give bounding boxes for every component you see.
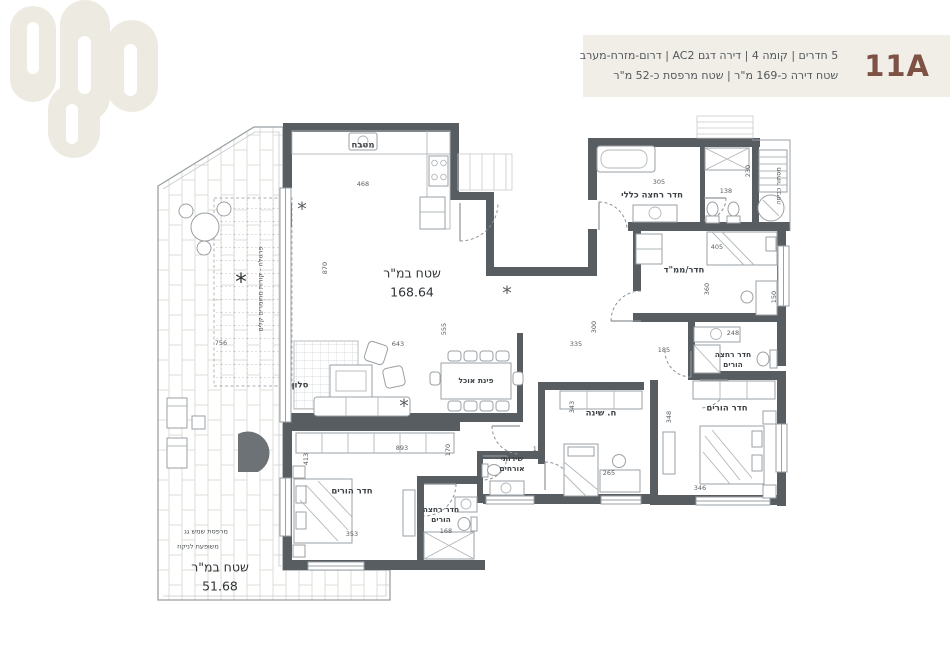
living-room [294, 340, 410, 416]
window [280, 478, 291, 536]
dimension-label: 185 [658, 346, 670, 354]
plant-icon: * [399, 398, 409, 417]
bedroom-bl-door [492, 426, 520, 454]
parents-bath-door [665, 351, 691, 377]
bench [403, 490, 415, 536]
stove-icon [429, 156, 448, 186]
window [778, 246, 789, 306]
room-label: שירותי אורחים [499, 454, 524, 474]
dimension-label: 343 [568, 401, 576, 413]
window [776, 424, 787, 472]
room-label: מרפסת שמש גג [184, 528, 228, 537]
room-label: חדר רחצה כללי [621, 190, 683, 201]
dimension-label: 305 [653, 178, 665, 186]
toilet-icon [706, 202, 719, 223]
dimension-label: 870 [321, 262, 329, 274]
bathtub-icon [597, 146, 655, 172]
dimension-label: 756 [215, 339, 227, 347]
dimension-label: 138 [720, 187, 732, 195]
mamad-room [636, 232, 777, 315]
room-label: חדר רחצה הורים [715, 350, 751, 370]
room-label: ח. שינה [586, 408, 617, 419]
floorplan-drawing [0, 0, 950, 650]
sink-icon [490, 481, 524, 495]
window [696, 497, 770, 505]
toilet-icon [757, 350, 777, 368]
plant-icon: * [297, 201, 307, 220]
armchair-icon [363, 340, 388, 365]
dimension-label: 643 [392, 340, 404, 348]
toilet-icon [727, 202, 740, 223]
room-label: פינת אוכל [458, 376, 493, 386]
dimension-label: 555 [440, 323, 448, 335]
coffee-table-icon [330, 365, 372, 397]
plant-icon: * [235, 272, 247, 295]
dimension-label: 413 [302, 453, 310, 465]
bathroom-door [599, 202, 627, 230]
dimension-label: 405 [711, 243, 723, 251]
nightstand [293, 466, 305, 478]
room-label: פרגולה - קורות מחומרים קלים [257, 246, 266, 331]
dimension-label: 265 [603, 469, 615, 477]
bench [663, 432, 675, 474]
sink-icon [633, 205, 677, 222]
closet [636, 234, 662, 264]
room-label: חדר הורים [331, 486, 372, 497]
room-label: חדר הורים [706, 403, 747, 414]
dimension-label: 468 [357, 180, 369, 188]
dimension-label: 115 [533, 445, 545, 453]
dimension-label: 353 [346, 530, 358, 538]
single-bed-icon [564, 444, 598, 496]
floorplan-page: 11A 5 חדרים | קומה 4 | דירה דגם AC2 | דר… [0, 0, 950, 650]
room-label: סלון [292, 380, 309, 391]
dimension-label: 346 [694, 484, 706, 492]
fridge-icon [420, 197, 445, 229]
dimension-label: 170 [444, 444, 452, 456]
room-label: מטבח [352, 140, 375, 151]
dimension-label: 248 [727, 329, 739, 337]
cabinet [705, 148, 749, 170]
window [486, 496, 534, 504]
nightstand [763, 485, 776, 498]
sofa-icon [314, 397, 410, 416]
closet [296, 433, 454, 453]
room-label: משופעת לניקוז [177, 543, 219, 552]
dimension-label: 300 [590, 321, 598, 333]
dimension-label: 230 [744, 165, 752, 177]
toilet-icon [458, 517, 477, 531]
room-label: שטח במ"ר 168.64 [383, 264, 441, 302]
armchair-icon [382, 365, 406, 389]
room-label: חדר רחצה הורים [423, 505, 459, 525]
window [308, 562, 364, 570]
dimension-label: 360 [703, 283, 711, 295]
room-label: חדר/ממ"ד [664, 265, 705, 276]
dimension-label: 168 [440, 527, 452, 535]
parents-bedroom-right [663, 381, 776, 498]
toilet-icon [482, 464, 501, 477]
dimension-label: 348 [665, 411, 673, 423]
closet [693, 381, 775, 399]
shower-icon [424, 532, 474, 559]
dimension-label: 150 [770, 291, 778, 303]
dimension-label: 335 [570, 340, 582, 348]
dimension-label: 893 [396, 444, 408, 452]
room-label: מסתור כביסה [775, 167, 784, 205]
room-label: שטח במ"ר 51.68 [191, 558, 249, 596]
plant-icon: * [502, 285, 512, 304]
nightstand [763, 411, 776, 424]
window [601, 496, 641, 504]
nightstand [293, 545, 305, 557]
double-bed-icon [700, 426, 764, 484]
window [280, 188, 291, 422]
